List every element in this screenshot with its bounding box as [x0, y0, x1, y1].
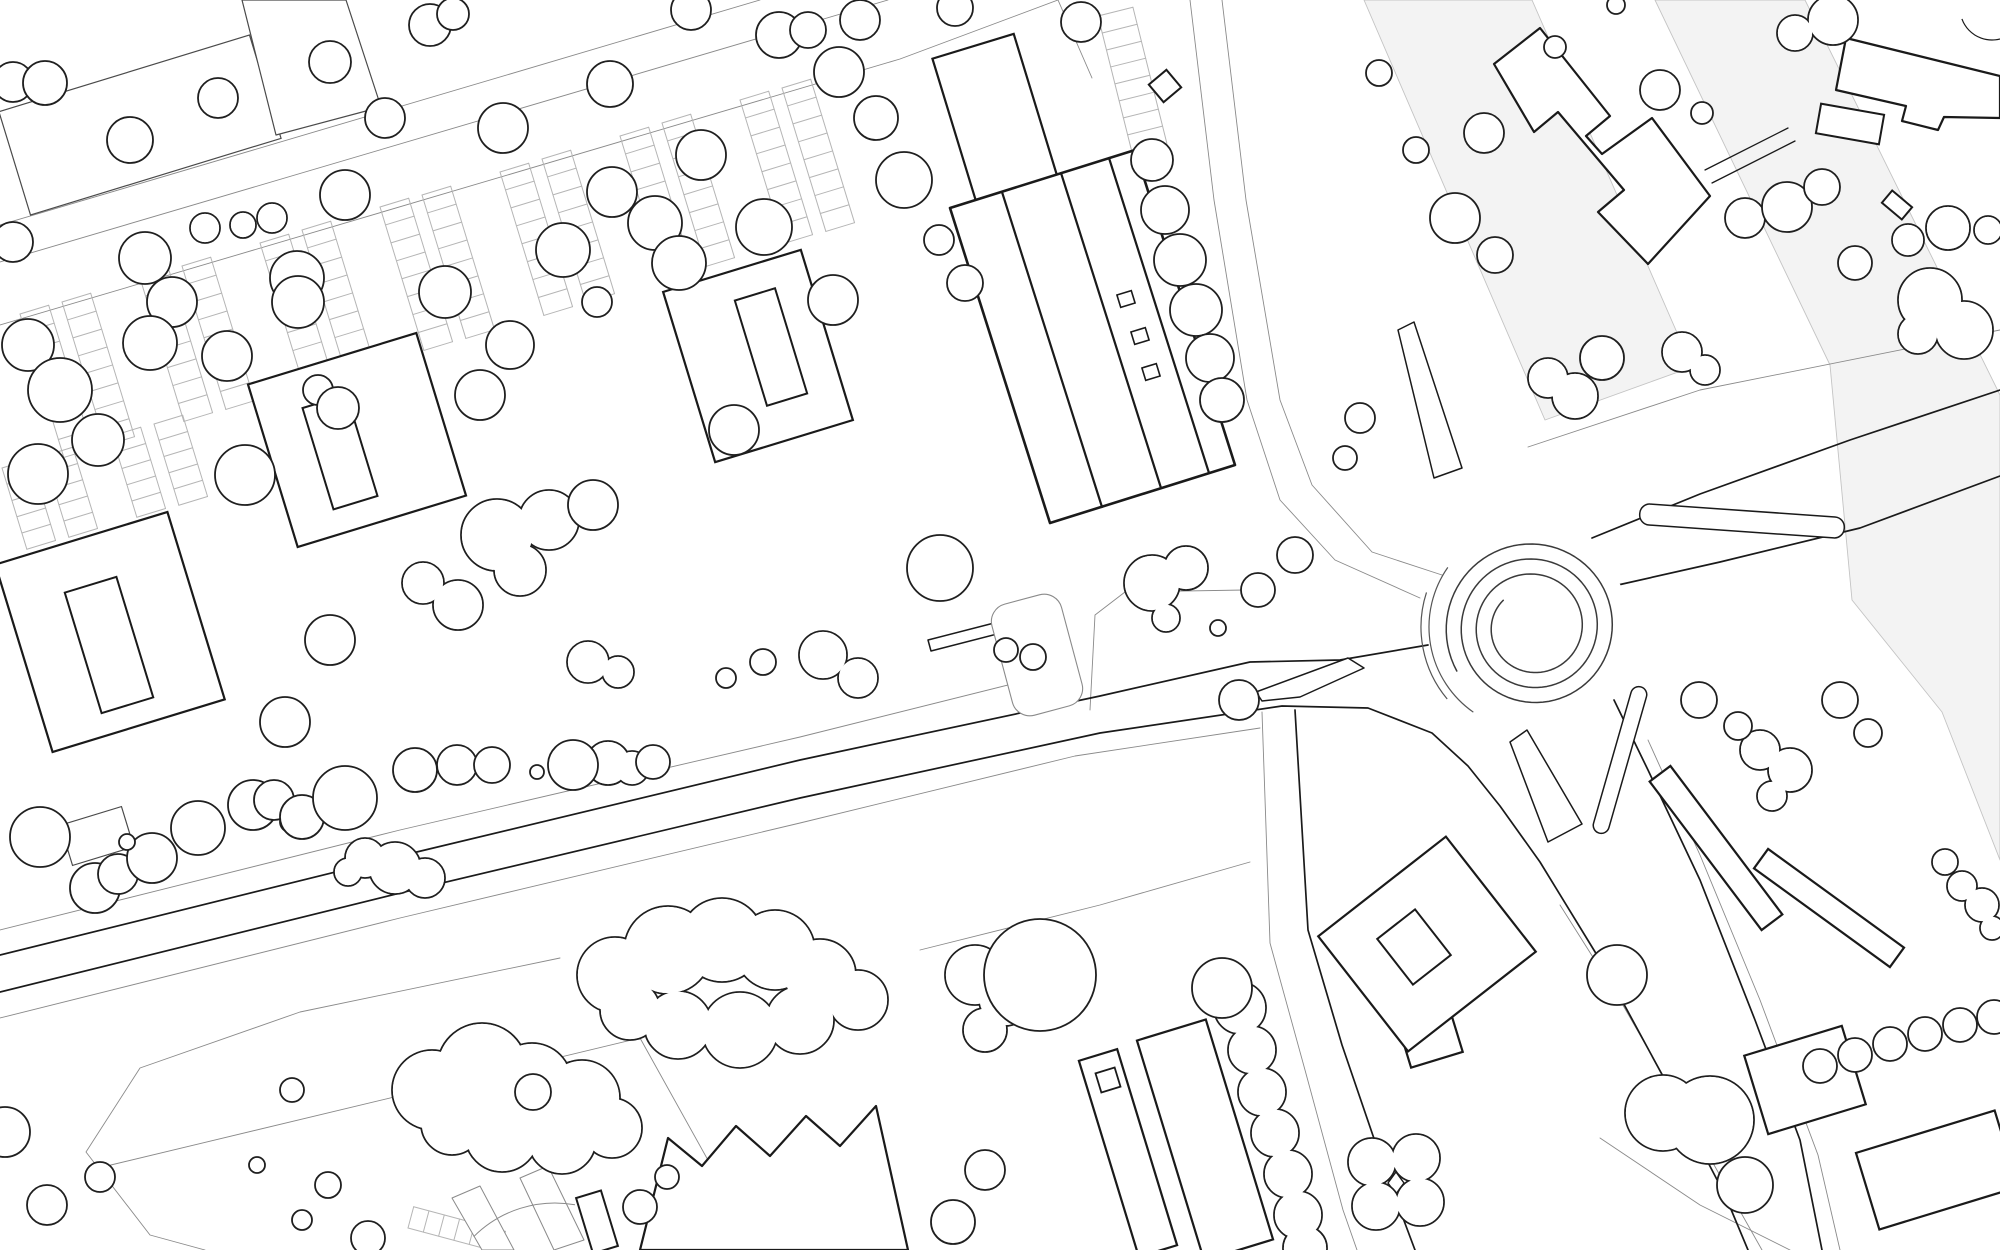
- stall-divider: [804, 151, 833, 160]
- stall-divider: [538, 289, 567, 298]
- stall-divider: [293, 342, 322, 351]
- stall-divider: [418, 324, 447, 333]
- tree: [924, 225, 954, 255]
- stall-divider: [22, 524, 51, 533]
- tree: [1200, 378, 1244, 422]
- stall-divider: [64, 512, 93, 521]
- tree: [315, 1172, 341, 1198]
- tree: [1943, 1008, 1977, 1042]
- tree: [1838, 1038, 1872, 1072]
- tree: [317, 387, 359, 429]
- tree-lobe-fill: [839, 659, 877, 697]
- stall-divider: [684, 186, 713, 195]
- stall-divider: [226, 401, 255, 410]
- tree-lobe-fill: [601, 981, 659, 1039]
- tree: [1366, 60, 1392, 86]
- tree: [1873, 1027, 1907, 1061]
- tree: [260, 697, 310, 747]
- tree: [351, 1221, 385, 1250]
- tree-lobe-fill: [1265, 1151, 1311, 1197]
- tree-lobe-fill: [1353, 1183, 1399, 1229]
- stall-divider: [787, 97, 816, 106]
- tree: [1580, 336, 1624, 380]
- tree: [202, 331, 252, 381]
- tree: [808, 275, 858, 325]
- stall-divider: [174, 480, 203, 489]
- stall-divider: [396, 252, 425, 261]
- tree: [1210, 620, 1226, 636]
- tree-cluster: [567, 641, 634, 688]
- median-island: [1639, 503, 1845, 538]
- tree-lobe-fill: [1667, 1077, 1753, 1163]
- stall-divider: [260, 234, 289, 243]
- tree: [1717, 1157, 1773, 1213]
- stall-divider: [324, 293, 353, 302]
- tree: [393, 748, 437, 792]
- stall-divider: [427, 204, 456, 213]
- stall-divider: [544, 307, 573, 316]
- tree-lobe-fill: [1393, 1135, 1439, 1181]
- tree: [28, 358, 92, 422]
- tree: [1908, 1017, 1942, 1051]
- tree: [1691, 102, 1713, 124]
- tree-lobe-fill: [800, 632, 846, 678]
- stall-divider: [767, 181, 796, 190]
- stall-divider: [745, 109, 774, 118]
- tree-lobe-fill: [1778, 16, 1812, 50]
- tree: [292, 1210, 312, 1230]
- tree: [1477, 237, 1513, 273]
- stall-divider: [1115, 75, 1150, 84]
- tree: [716, 668, 736, 688]
- tree: [1131, 139, 1173, 181]
- stall-divider: [62, 293, 91, 302]
- building: [1149, 70, 1181, 102]
- stall-divider: [511, 199, 540, 208]
- tree-cluster: [1932, 849, 2000, 940]
- tree-cluster: [1740, 730, 1812, 811]
- tree-lobe-fill: [829, 971, 887, 1029]
- tree-lobe-fill: [1933, 850, 1957, 874]
- tree: [119, 232, 171, 284]
- tree-cluster: [799, 631, 878, 698]
- stall-divider: [580, 276, 609, 285]
- traffic-island: [1398, 322, 1462, 478]
- tree: [947, 265, 983, 301]
- tree: [1803, 1049, 1837, 1083]
- tree: [272, 276, 324, 328]
- traffic-island: [1510, 730, 1582, 842]
- tree-lobe-fill: [529, 1107, 595, 1173]
- stall-divider: [122, 460, 151, 469]
- stall-divider: [500, 163, 529, 172]
- stall-divider: [335, 329, 364, 338]
- tree: [984, 919, 1096, 1031]
- stall-rail: [183, 415, 208, 496]
- arc-mark: [1962, 19, 2000, 40]
- tree: [313, 766, 377, 830]
- stall-divider: [636, 181, 665, 190]
- stall-divider: [391, 234, 420, 243]
- tree: [486, 321, 534, 369]
- tree-lobe-fill: [568, 642, 608, 682]
- tree: [23, 61, 67, 105]
- tree: [309, 41, 351, 83]
- tree: [1170, 284, 1222, 336]
- tree-lobe-fill: [1927, 207, 1969, 249]
- stall-divider: [173, 377, 202, 386]
- courtyard-building: [1318, 837, 1536, 1052]
- tree: [840, 0, 880, 40]
- stall-divider: [154, 415, 183, 424]
- tree: [1186, 334, 1234, 382]
- tree-lobe-fill: [434, 581, 482, 629]
- stall-divider: [424, 342, 453, 351]
- stall-divider: [1102, 24, 1137, 33]
- tree: [1345, 403, 1375, 433]
- site-plan-canvas: [0, 0, 2000, 1250]
- layer-roundabout: [1421, 530, 1630, 724]
- stall-divider: [59, 496, 88, 505]
- stall-divider: [553, 186, 582, 195]
- tree: [736, 199, 792, 255]
- tree: [568, 480, 618, 530]
- tree: [1544, 36, 1566, 58]
- stall-divider: [385, 216, 414, 225]
- tree: [515, 1074, 551, 1110]
- tree: [72, 414, 124, 466]
- tree: [437, 745, 477, 785]
- path-line: [1190, 0, 1420, 598]
- stall-divider: [89, 383, 118, 392]
- tree: [1681, 682, 1717, 718]
- stall-divider: [408, 1207, 414, 1228]
- parking-strip: [154, 415, 208, 505]
- tree: [1430, 193, 1480, 243]
- tree-cluster: [402, 562, 483, 630]
- tree: [907, 535, 973, 601]
- tree-lobe-fill: [1966, 889, 1998, 921]
- tree: [1241, 573, 1275, 607]
- tree: [652, 236, 706, 290]
- stall-divider: [439, 1215, 445, 1236]
- stall-divider: [793, 115, 822, 124]
- stall-divider: [132, 492, 161, 501]
- stall-divider: [454, 1219, 460, 1240]
- tree-cluster: [1662, 332, 1720, 385]
- tree: [548, 740, 598, 790]
- tree-lobe-fill: [1553, 374, 1597, 418]
- tree: [320, 170, 370, 220]
- tree: [198, 78, 238, 118]
- stall-divider: [706, 258, 735, 267]
- tree: [1804, 169, 1840, 205]
- stall-divider: [625, 145, 654, 154]
- tree: [671, 0, 711, 30]
- roundabout: [1421, 530, 1630, 724]
- stall-divider: [220, 383, 249, 392]
- tree-cluster: [1898, 268, 1993, 359]
- tree-lobe-fill: [1936, 302, 1992, 358]
- tree: [876, 152, 932, 208]
- stall-divider: [689, 204, 718, 213]
- tree-lobe-fill: [335, 859, 361, 885]
- tree-lobe-fill: [1153, 605, 1179, 631]
- tree: [1020, 644, 1046, 670]
- tree: [636, 745, 670, 779]
- stall-divider: [307, 239, 336, 248]
- tree: [305, 615, 355, 665]
- stall-divider: [20, 305, 49, 314]
- stall-divider: [438, 240, 467, 249]
- tree: [107, 117, 153, 163]
- stall-divider: [547, 168, 576, 177]
- tree: [790, 12, 826, 48]
- tree: [1061, 2, 1101, 42]
- stall-divider: [433, 222, 462, 231]
- tree: [455, 370, 505, 420]
- tree-lobe-fill: [1893, 225, 1923, 255]
- stall-divider: [700, 240, 729, 249]
- tree: [965, 1150, 1005, 1190]
- tree: [582, 287, 612, 317]
- tree: [931, 1200, 975, 1244]
- stall-divider: [826, 223, 855, 232]
- tree-lobe-fill: [1239, 1069, 1285, 1115]
- stall-divider: [187, 275, 216, 284]
- tree: [937, 0, 973, 26]
- stall-divider: [67, 311, 96, 320]
- courtyard-building: [248, 333, 466, 547]
- site-plan-page: [0, 0, 2000, 1250]
- tree-cluster: [577, 898, 888, 1068]
- tree-lobe-fill: [1165, 547, 1207, 589]
- stall-divider: [164, 448, 193, 457]
- tree: [1403, 137, 1429, 163]
- tree-lobe-fill: [231, 213, 255, 237]
- stall-divider: [73, 329, 102, 338]
- tree-lobe-fill: [1349, 1139, 1395, 1185]
- stall-divider: [1106, 41, 1141, 50]
- tree: [854, 96, 898, 140]
- tree: [1977, 1000, 2000, 1034]
- tree-lobe-fill: [1758, 782, 1786, 810]
- tree: [1838, 246, 1872, 280]
- stall-divider: [516, 217, 545, 226]
- stall-divider: [127, 476, 156, 485]
- building: [932, 34, 1057, 202]
- tree: [0, 1107, 30, 1157]
- tree: [1219, 680, 1259, 720]
- tree: [1333, 446, 1357, 470]
- tree: [1724, 712, 1752, 740]
- stall-divider: [84, 365, 113, 374]
- stall-divider: [159, 431, 188, 440]
- tree: [215, 445, 275, 505]
- traffic-island: [928, 622, 1001, 651]
- tree: [249, 1157, 265, 1173]
- tree: [1822, 682, 1858, 718]
- tree: [1192, 958, 1252, 1018]
- tree-lobe-fill: [495, 545, 545, 595]
- stall-divider: [460, 312, 489, 321]
- median-island: [1591, 685, 1648, 836]
- tree-lobe-fill: [1397, 1179, 1443, 1225]
- stall-divider: [1119, 92, 1154, 101]
- stall-divider: [182, 257, 211, 266]
- tree: [587, 167, 637, 217]
- tree: [1607, 0, 1625, 14]
- stall-divider: [1098, 7, 1133, 16]
- stall-divider: [695, 222, 724, 231]
- tree: [474, 747, 510, 783]
- tree: [1277, 537, 1313, 573]
- building: [520, 1166, 584, 1250]
- tree: [119, 834, 135, 850]
- tree: [750, 649, 776, 675]
- stall-divider: [820, 205, 849, 214]
- tree: [0, 222, 33, 262]
- tree: [623, 1190, 657, 1224]
- traffic-island: [1256, 658, 1364, 701]
- stall-divider: [17, 508, 46, 517]
- tree-lobe-fill: [1252, 1110, 1298, 1156]
- stall-divider: [762, 163, 791, 172]
- tree: [709, 405, 759, 455]
- stall-divider: [95, 401, 124, 410]
- tree: [1725, 198, 1765, 238]
- tree: [994, 638, 1018, 662]
- tree: [676, 130, 726, 180]
- layer-greenway-bands: [1364, 0, 2000, 860]
- stall-divider: [184, 413, 213, 422]
- tree: [530, 765, 544, 779]
- tree: [280, 1078, 304, 1102]
- stall-divider: [169, 464, 198, 473]
- tree: [814, 47, 864, 97]
- stall-divider: [179, 497, 208, 506]
- tree-cluster: [461, 490, 579, 596]
- tree: [478, 103, 528, 153]
- tree: [1154, 234, 1206, 286]
- tree-cluster: [334, 838, 445, 898]
- tree-lobe-fill: [603, 657, 633, 687]
- tree: [1640, 70, 1680, 110]
- tree-lobe-fill: [191, 214, 219, 242]
- stall-divider: [505, 181, 534, 190]
- stall-divider: [1128, 126, 1163, 135]
- stall-divider: [1123, 109, 1158, 118]
- path-line: [920, 862, 1250, 950]
- tree-lobe-fill: [1975, 217, 2000, 243]
- tree: [27, 1185, 67, 1225]
- tree: [85, 1162, 115, 1192]
- stall-divider: [78, 347, 107, 356]
- tree: [1854, 719, 1882, 747]
- parking-strip: [782, 79, 855, 231]
- building: [452, 1186, 514, 1250]
- tree-cluster: [190, 203, 287, 243]
- tree-cluster: [1124, 546, 1208, 632]
- tree: [1141, 186, 1189, 234]
- tree-lobe-fill: [258, 204, 286, 232]
- stall-divider: [815, 187, 844, 196]
- tree: [419, 266, 471, 318]
- tree: [437, 0, 469, 30]
- tree-lobe-fill: [1229, 1027, 1275, 1073]
- building: [1856, 1111, 2000, 1230]
- tree: [365, 98, 405, 138]
- tree: [8, 444, 68, 504]
- building: [640, 1106, 908, 1250]
- tree: [587, 61, 633, 107]
- stall-divider: [809, 169, 838, 178]
- stall-divider: [423, 1211, 429, 1232]
- tree-lobe-fill: [1691, 356, 1719, 384]
- stall-divider: [1111, 58, 1146, 67]
- tree: [123, 316, 177, 370]
- tree: [536, 223, 590, 277]
- tree: [1587, 945, 1647, 1005]
- tree-cluster: [1625, 1075, 1754, 1164]
- tree: [171, 801, 225, 855]
- stall-divider: [756, 145, 785, 154]
- tree: [10, 807, 70, 867]
- tree-lobe-fill: [406, 859, 444, 897]
- tree: [1464, 113, 1504, 153]
- stall-divider: [798, 133, 827, 142]
- tree-lobe-fill: [1899, 315, 1937, 353]
- stall-divider: [198, 311, 227, 320]
- stall-divider: [751, 127, 780, 136]
- courtyard-building: [0, 512, 225, 752]
- stall-divider: [178, 395, 207, 404]
- tree-lobe-fill: [767, 987, 833, 1053]
- stall-divider: [631, 163, 660, 172]
- stall-divider: [558, 204, 587, 213]
- stall-divider: [422, 186, 451, 195]
- stall-divider: [329, 311, 358, 320]
- tree-lobe-fill: [422, 1094, 482, 1154]
- tree-lobe-fill: [703, 993, 777, 1067]
- tree: [655, 1165, 679, 1189]
